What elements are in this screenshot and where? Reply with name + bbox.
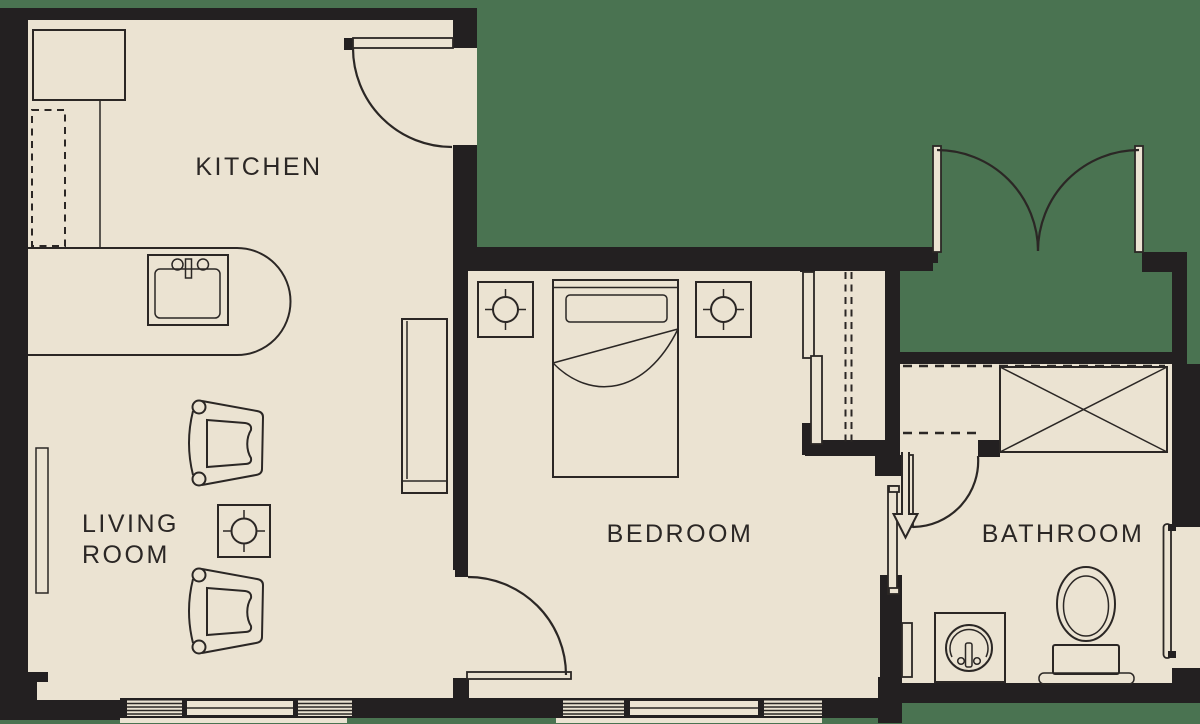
living-room-window: [120, 698, 357, 723]
living-room-label-line2: ROOM: [82, 541, 170, 569]
vanity-side-panel: [902, 623, 912, 677]
closet-sliding-door: [811, 356, 822, 444]
closet-sliding-door: [803, 272, 814, 358]
pocket-door-panel: [888, 486, 899, 594]
living-room-label-line1: LIVING: [82, 510, 179, 538]
bedroom-window: [556, 698, 825, 723]
bedroom-label: BEDROOM: [607, 520, 754, 548]
bathroom-label: BATHROOM: [982, 520, 1145, 548]
kitchen-label: KITCHEN: [195, 153, 322, 181]
floor-plan: KITCHEN LIVIN: [0, 0, 1200, 724]
